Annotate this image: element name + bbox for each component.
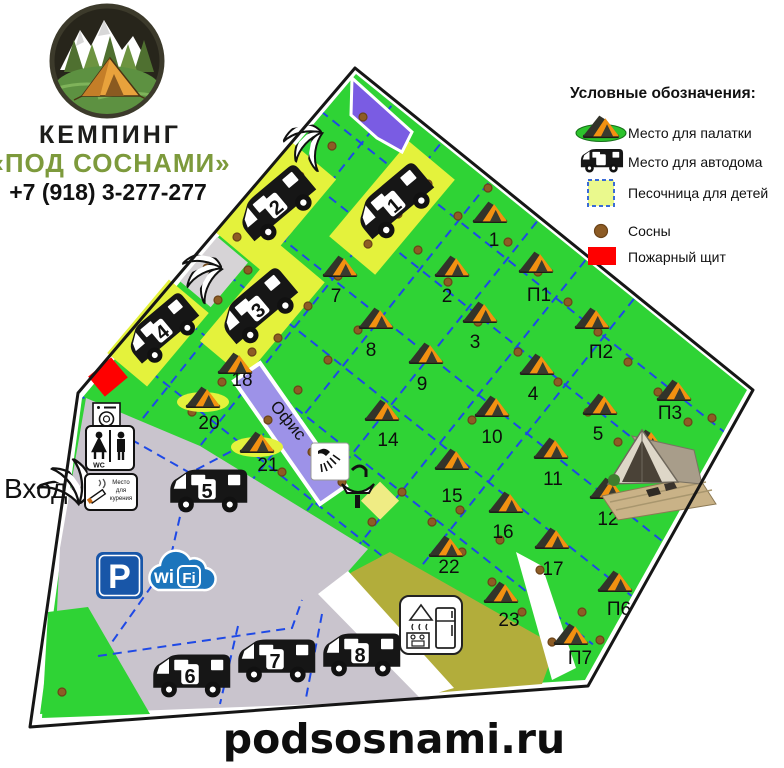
shower-icon bbox=[311, 443, 349, 480]
entrance-label: Вход bbox=[4, 473, 67, 504]
legend: Условные обозначения: Место для палатки … bbox=[570, 85, 768, 265]
legend-label: Место для палатки bbox=[628, 125, 752, 141]
tent-site-label: 16 bbox=[492, 522, 513, 543]
camp-logo bbox=[52, 6, 162, 116]
tent-site-label: 22 bbox=[438, 557, 459, 578]
tent-site-label: 3 bbox=[470, 332, 481, 353]
sandbox-swatch bbox=[588, 180, 614, 206]
tent-site-label: 15 bbox=[441, 486, 462, 507]
tent-zone-label: П2 bbox=[589, 342, 613, 363]
legend-label: Сосны bbox=[628, 223, 671, 239]
legend-item-pines: Сосны bbox=[595, 223, 671, 239]
tent-site-label: 4 bbox=[528, 384, 539, 405]
smoking-label-2: для bbox=[116, 488, 126, 494]
rv-icon bbox=[581, 149, 623, 172]
website-url: podsosnami.ru bbox=[223, 715, 565, 763]
smoking-label-3: курения bbox=[110, 496, 132, 502]
tent-site-label: 11 bbox=[543, 469, 563, 490]
tent-zone-label: П7 bbox=[568, 648, 592, 669]
tent-site-label: 8 bbox=[366, 340, 377, 361]
legend-label: Пожарный щит bbox=[628, 249, 726, 265]
legend-item-rv: Место для автодома bbox=[581, 149, 763, 172]
smoking-label-1: Место bbox=[112, 480, 130, 486]
legend-label: Песочница для детей bbox=[628, 185, 768, 201]
parking-sign: P bbox=[96, 552, 143, 599]
kitchen-icon bbox=[400, 596, 462, 654]
tent-site-label: 5 bbox=[593, 424, 604, 445]
legend-item-sandbox: Песочница для детей bbox=[588, 180, 768, 206]
campground-poster: Офис bbox=[0, 0, 784, 768]
tent-site-label: 23 bbox=[498, 610, 519, 631]
tent-site-label: 2 bbox=[442, 286, 453, 307]
tent-site-label: 9 bbox=[417, 374, 428, 395]
legend-label: Место для автодома bbox=[628, 154, 763, 170]
tent-site-label: 14 bbox=[377, 430, 399, 451]
tent-site-label: 21 bbox=[257, 455, 278, 476]
tent-site-label: 17 bbox=[542, 559, 563, 580]
brand-phone: +7 (918) 3-277-277 bbox=[9, 179, 207, 205]
wifi-label-wi: wi bbox=[153, 567, 174, 588]
tent-site-label: 1 bbox=[489, 230, 500, 251]
tent-zone-label: П3 bbox=[658, 403, 682, 424]
wc-sign: WC bbox=[86, 426, 134, 470]
tent-site-label: 10 bbox=[481, 427, 502, 448]
rv-site-label: 7 bbox=[269, 651, 280, 673]
fire-shield-swatch bbox=[588, 247, 616, 265]
campground-map: Офис bbox=[0, 0, 784, 768]
brand-subtitle: «ПОД СОСНАМИ» bbox=[0, 148, 231, 178]
smoking-area-sign: Место для курения bbox=[85, 474, 137, 510]
tent-site-label: 20 bbox=[198, 413, 219, 434]
parking-label: P bbox=[108, 558, 131, 596]
tent-zone-label: П1 bbox=[527, 285, 551, 306]
tent-site-label: 18 bbox=[231, 370, 252, 391]
brand-title: КЕМПИНГ bbox=[39, 121, 181, 149]
rv-site-label: 5 bbox=[201, 481, 212, 503]
tent-site-label: 7 bbox=[331, 286, 342, 307]
pine-dot bbox=[595, 225, 608, 238]
brand-header: КЕМПИНГ «ПОД СОСНАМИ» +7 (918) 3-277-277 bbox=[0, 6, 231, 205]
rv-site-label: 8 bbox=[354, 645, 365, 667]
rv-site-label: 6 bbox=[184, 666, 195, 688]
wifi-label-fi: Fi bbox=[182, 570, 195, 587]
wc-label: WC bbox=[93, 463, 105, 470]
legend-item-fire-shield: Пожарный щит bbox=[588, 247, 726, 265]
legend-item-tent: Место для палатки bbox=[576, 116, 752, 142]
legend-title: Условные обозначения: bbox=[570, 85, 756, 102]
